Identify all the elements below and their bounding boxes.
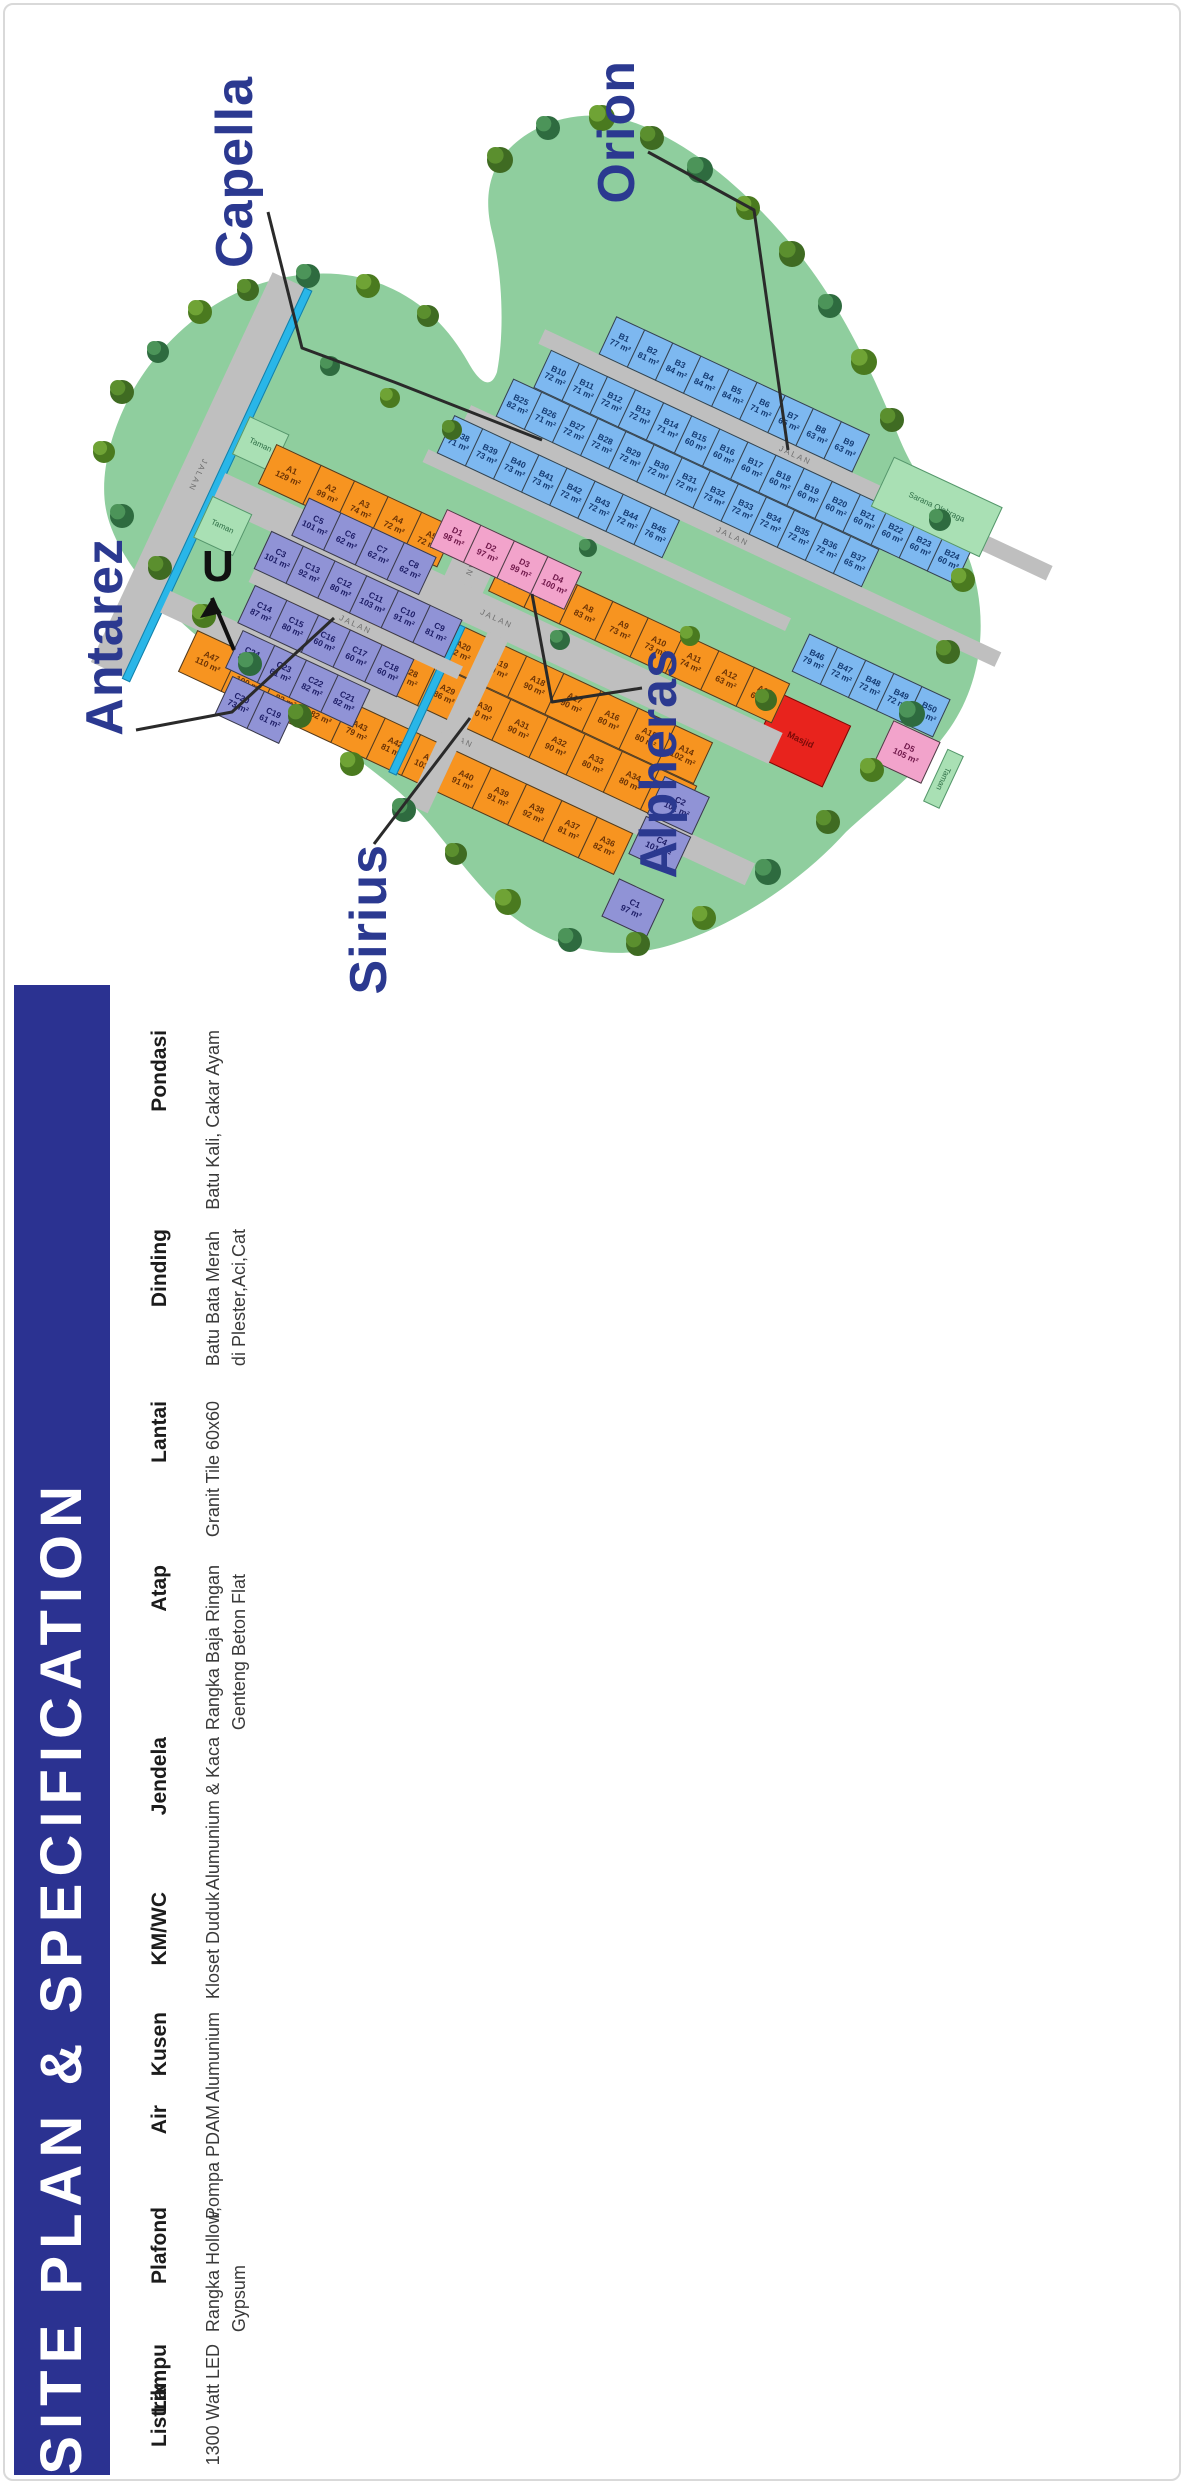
spec-value-lampu: LED [200, 2344, 226, 2379]
spec-value-air: Pompa PDAM [200, 2105, 226, 2219]
spec-value-pondasi: Batu Kali, Cakar Ayam [200, 1030, 226, 1210]
spec-value-plafond: Rangka Hollow,Gypsum [200, 2207, 252, 2332]
spec-value-kusen: Alumunium [200, 2012, 226, 2102]
tree-icon [93, 441, 115, 463]
spec-label-plafond: Plafond [148, 2207, 172, 2284]
area-label-capella: Capella [206, 76, 266, 268]
tree-icon [929, 509, 951, 531]
area-label-alpheras: Alpheras [630, 648, 690, 879]
tree-icon [110, 504, 134, 528]
tree-icon [550, 630, 570, 650]
tree-icon [147, 341, 169, 363]
tree-icon [692, 906, 716, 930]
tree-icon [445, 843, 467, 865]
spec-value-atap: Rangka Baja RinganGenteng Beton Flat [200, 1565, 252, 1730]
tree-icon [880, 408, 904, 432]
tree-icon [626, 932, 650, 956]
tree-icon [487, 147, 513, 173]
spec-value-jendela: Alumunium & Kaca [200, 1737, 226, 1890]
tree-icon [860, 758, 884, 782]
tree-icon [237, 279, 259, 301]
tree-icon [936, 640, 960, 664]
site-plan-map: U Capella Orion Antarez Alpheras Sirius … [0, 0, 1184, 1000]
tree-icon [148, 556, 172, 580]
tree-icon [816, 810, 840, 834]
tree-icon [579, 539, 597, 557]
tree-icon [818, 294, 842, 318]
leader-line-alpheras [532, 594, 642, 702]
spec-label-dinding: Dinding [148, 1229, 172, 1307]
area-label-orion: Orion [588, 60, 648, 204]
spec-label-atap: Atap [148, 1565, 172, 1612]
tree-icon [340, 752, 364, 776]
spec-label-kusen: Kusen [148, 2012, 172, 2076]
tree-icon [899, 701, 925, 727]
tree-icon [755, 689, 777, 711]
spec-label-lantai: Lantai [148, 1401, 172, 1463]
spec-value-dinding: Batu Bata Merahdi Plester,Aci,Cat [200, 1229, 252, 1366]
tree-icon [755, 859, 781, 885]
spec-label-kmwc: KM/WC [148, 1892, 172, 1965]
spec-label-pondasi: Pondasi [148, 1030, 172, 1112]
tree-icon [188, 300, 212, 324]
leader-line-capella [268, 212, 542, 440]
spec-label-jendela: Jendela [148, 1737, 172, 1815]
tree-icon [392, 798, 416, 822]
north-indicator: U [186, 542, 266, 662]
spec-label-air: Air [148, 2105, 172, 2134]
tree-icon [442, 420, 462, 440]
page-title: SITE PLAN & SPECIFICATION [29, 1453, 96, 2475]
tree-icon [296, 264, 320, 288]
tree-icon [951, 568, 975, 592]
north-label: U [202, 542, 234, 592]
spec-value-listrik: 1300 Watt [200, 2384, 226, 2465]
tree-icon [356, 274, 380, 298]
area-label-antarez: Antarez [76, 538, 136, 736]
tree-icon [558, 928, 582, 952]
tree-icon [417, 305, 439, 327]
tree-icon [110, 380, 134, 404]
tree-icon [380, 388, 400, 408]
tree-icon [680, 626, 700, 646]
title-banner: SITE PLAN & SPECIFICATION [14, 985, 110, 2475]
tree-icon [495, 889, 521, 915]
spec-value-lantai: Granit Tile 60x60 [200, 1401, 226, 1537]
leader-line-orion [648, 152, 788, 450]
area-label-sirius: Sirius [340, 844, 400, 995]
spec-label-listrik: Listrik [148, 2384, 172, 2447]
tree-icon [288, 704, 312, 728]
tree-icon [536, 116, 560, 140]
tree-icon [851, 349, 877, 375]
leader-line-sirius [374, 718, 470, 844]
spec-value-kmwc: Kloset Duduk [200, 1892, 226, 1999]
tree-icon [779, 241, 805, 267]
